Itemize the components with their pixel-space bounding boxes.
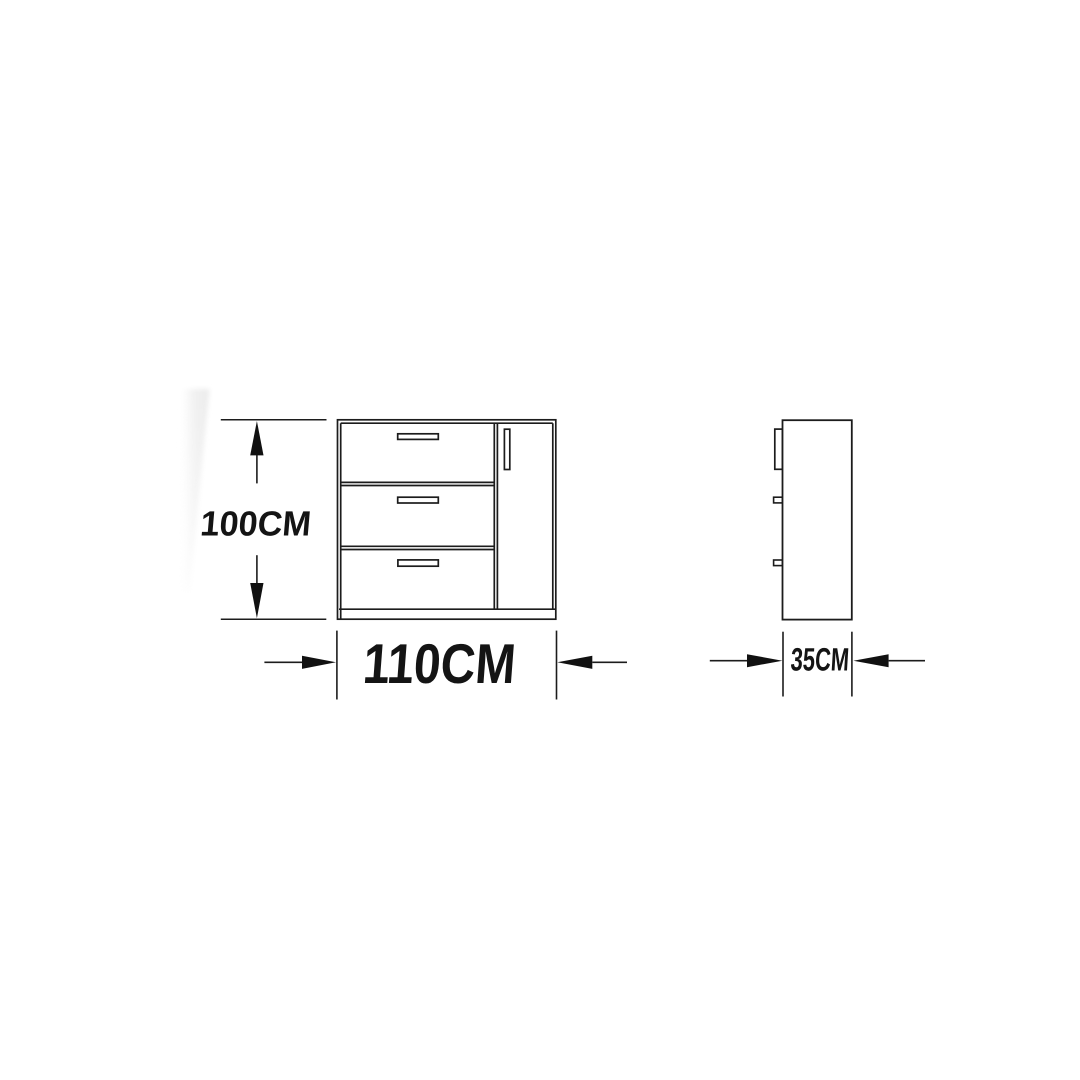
svg-text:110CM: 110CM — [361, 634, 518, 696]
svg-text:100CM: 100CM — [199, 505, 313, 543]
svg-text:35CM: 35CM — [790, 641, 850, 677]
